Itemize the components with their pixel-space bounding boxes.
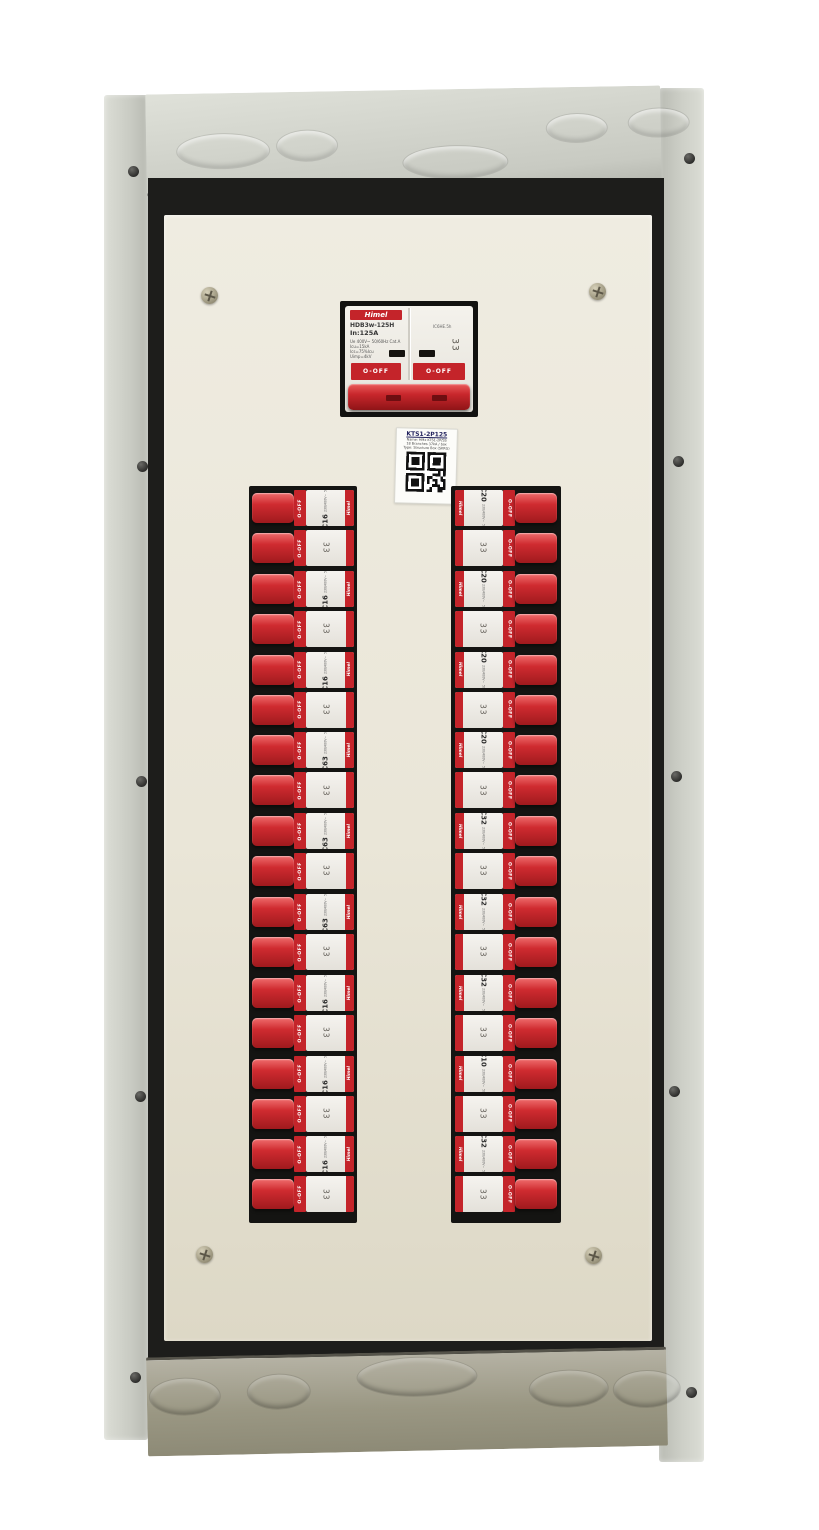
breaker-toggle[interactable] (252, 1099, 294, 1129)
breaker-pole-plain: O-OFF 33 (455, 934, 557, 970)
breaker-label: HDB3wN C16 230/400V~ 50/60Hz 6000 (306, 571, 345, 607)
off-band: O-OFF (503, 1056, 515, 1092)
branch-breaker: O-OFF HDB3wN C32 230/400V~ 50/60Hz 6000 … (455, 975, 557, 1052)
breaker-body: 33 (306, 692, 354, 728)
off-band: O-OFF (294, 571, 306, 607)
himel-logo: Himel (345, 732, 354, 768)
cert-mark: 33 (479, 865, 488, 877)
off-band: O-OFF (294, 934, 306, 970)
breaker-voltage: 230/400V~ (482, 988, 486, 1006)
breaker-toggle[interactable] (252, 614, 294, 644)
breaker-voltage: 230/400V~ (482, 1150, 486, 1168)
breaker-frequency: 50/60Hz (324, 732, 328, 734)
cert-mark: 33 (322, 785, 331, 797)
off-band: O-OFF (294, 1015, 306, 1051)
breaker-toggle[interactable] (252, 1059, 294, 1089)
himel-logo: Himel (455, 652, 464, 688)
off-band: O-OFF (413, 363, 465, 380)
off-band: O-OFF (294, 1096, 306, 1132)
off-band: O-OFF (351, 363, 401, 380)
breaker-voltage: 230/400V~ (482, 584, 486, 602)
flange-screw (128, 166, 139, 177)
breaker-pole-plain: O-OFF 33 (252, 1096, 354, 1132)
breaker-frequency: 50/60Hz (324, 571, 328, 573)
breaker-toggle[interactable] (515, 1059, 557, 1089)
branch-breaker: O-OFF HDB3wN C20 230/400V~ 50/60Hz 6000 … (455, 732, 557, 809)
breaker-pole-plain: O-OFF 33 (252, 772, 354, 808)
breaker-rating: C63 (322, 757, 330, 769)
breaker-pole-plain: O-OFF 33 (252, 853, 354, 889)
knockout-oval (148, 1377, 221, 1416)
breaker-label: HDB3wN C16 230/400V~ 50/60Hz 6000 (306, 652, 345, 688)
breaker-label: HDB3wN C20 230/400V~ 50/60Hz 6000 (464, 652, 503, 688)
breaker-pole-labeled: O-OFF HDB3wN C63 230/400V~ 50/60Hz 6000 … (252, 732, 354, 768)
branch-breaker: O-OFF HDB3wN C16 230/400V~ 50/60Hz 6000 … (252, 652, 354, 729)
cert-mark: 33 (479, 785, 488, 797)
breaker-pole-labeled: O-OFF HDB3wN C20 230/400V~ 50/60Hz 6000 … (455, 732, 557, 768)
breaker-pole-labeled: O-OFF HDB3wN C32 230/400V~ 50/60Hz 6000 … (455, 1136, 557, 1172)
off-band: O-OFF (503, 1176, 515, 1212)
breaker-rating: C16 (322, 514, 330, 526)
flange-screw (684, 153, 695, 164)
breaker-pole-labeled: O-OFF HDB3wN C16 230/400V~ 50/60Hz 6000 … (252, 490, 354, 526)
main-breaker-rating: In:125A (350, 329, 378, 337)
breaker-toggle[interactable] (252, 897, 294, 927)
breaker-toggle[interactable] (252, 1018, 294, 1048)
flange-screw (130, 1372, 141, 1383)
cert-mark: 33 (479, 623, 488, 635)
breaker-rating: C63 (322, 838, 330, 850)
knockout-oval (356, 1356, 478, 1399)
breaker-body: 33 (455, 1015, 503, 1051)
breaker-pole-plain: O-OFF 33 (252, 692, 354, 728)
breaker-toggle[interactable] (515, 655, 557, 685)
breaker-pole-labeled: O-OFF HDB3wN C16 230/400V~ 50/60Hz 6000 … (252, 1056, 354, 1092)
cert-mark: 33 (322, 1189, 331, 1201)
breaker-label: HDB3wN C10 230/400V~ 50/60Hz 6000 (464, 1056, 503, 1092)
red-stripe (346, 1096, 354, 1132)
breaker-body: 33 (455, 530, 503, 566)
breaker-frequency: 50/60Hz (482, 928, 486, 930)
breaker-body: HDB3wN C63 230/400V~ 50/60Hz 6000 Himel (306, 894, 354, 930)
off-band: O-OFF (294, 1056, 306, 1092)
branch-breaker: O-OFF HDB3wN C10 230/400V~ 50/60Hz 6000 … (455, 1056, 557, 1133)
breaker-rating: C16 (322, 999, 330, 1011)
panel-photo: Himel HDB3w-125H In:125A IC6HE.5h Ue 400… (0, 0, 819, 1530)
breaker-frequency: 50/60Hz (324, 975, 328, 977)
knockout-oval (546, 112, 609, 143)
door-screw (196, 1246, 213, 1263)
breaker-toggle[interactable] (515, 978, 557, 1008)
breaker-voltage: 230/400V~ (324, 979, 328, 997)
breaker-rating: C10 (480, 1056, 488, 1068)
breaker-rating: C20 (480, 571, 488, 583)
flange-screw (136, 776, 147, 787)
flange-screw (671, 771, 682, 782)
breaker-frequency: 50/60Hz (482, 1170, 486, 1172)
branch-breaker: O-OFF HDB3wN C20 230/400V~ 50/60Hz 6000 … (455, 652, 557, 729)
breaker-toggle[interactable] (252, 816, 294, 846)
off-band: O-OFF (294, 853, 306, 889)
breaker-rating: C20 (480, 732, 488, 744)
flange-screw (137, 461, 148, 472)
door-screw (201, 287, 218, 304)
breaker-voltage: 230/400V~ (482, 665, 486, 683)
breaker-rating: C32 (480, 975, 488, 987)
red-stripe (455, 611, 463, 647)
breaker-toggle[interactable] (515, 695, 557, 725)
qr-code (405, 451, 446, 492)
red-stripe (455, 1176, 463, 1212)
himel-logo: Himel (455, 975, 464, 1011)
knockout-oval (276, 129, 339, 162)
breaker-body: HDB3wN C16 230/400V~ 50/60Hz 6000 Himel (306, 1136, 354, 1172)
off-band: O-OFF (503, 1136, 515, 1172)
breaker-toggle[interactable] (252, 493, 294, 523)
breaker-frequency: 50/60Hz (324, 490, 328, 492)
handle-slot (432, 395, 447, 401)
breaker-voltage: 230/400V~ (482, 827, 486, 845)
breaker-body: 33 (455, 853, 503, 889)
breaker-body: 33 (306, 611, 354, 647)
breaker-pole-labeled: O-OFF HDB3wN C16 230/400V~ 50/60Hz 6000 … (252, 975, 354, 1011)
breaker-body: 33 (306, 1015, 354, 1051)
breaker-frequency: 50/60Hz (482, 524, 486, 526)
breaker-pole-labeled: O-OFF HDB3wN C20 230/400V~ 50/60Hz 6000 … (455, 490, 557, 526)
breaker-rating: C20 (480, 652, 488, 664)
cert-mark: 33 (450, 338, 460, 351)
breaker-voltage: 230/400V~ (324, 656, 328, 674)
red-stripe (455, 692, 463, 728)
breaker-voltage: 230/400V~ (482, 746, 486, 764)
red-stripe (455, 1015, 463, 1051)
breaker-body: HDB3wN C32 230/400V~ 50/60Hz 6000 Himel (455, 813, 503, 849)
breaker-body: HDB3wN C32 230/400V~ 50/60Hz 6000 Himel (455, 1136, 503, 1172)
off-band: O-OFF (503, 530, 515, 566)
breaker-toggle[interactable] (515, 493, 557, 523)
cert-mark: 33 (322, 865, 331, 877)
breaker-pole-labeled: O-OFF HDB3wN C32 230/400V~ 50/60Hz 6000 … (455, 975, 557, 1011)
breaker-label: HDB3wN C32 230/400V~ 50/60Hz 6000 (464, 1136, 503, 1172)
knockout-oval (402, 144, 509, 180)
breaker-frequency: 50/60Hz (482, 605, 486, 607)
cert-mark: 33 (479, 704, 488, 716)
breaker-label: HDB3wN C32 230/400V~ 50/60Hz 6000 (464, 894, 503, 930)
breaker-toggle[interactable] (515, 897, 557, 927)
off-band: O-OFF (294, 652, 306, 688)
breaker-body: HDB3wN C16 230/400V~ 50/60Hz 6000 Himel (306, 975, 354, 1011)
off-band: O-OFF (503, 1096, 515, 1132)
red-stripe (346, 853, 354, 889)
breaker-body: 33 (455, 1096, 503, 1132)
breaker-body: 33 (455, 1176, 503, 1212)
himel-logo: Himel (345, 1056, 354, 1092)
enclosure-rail-bottom (146, 1347, 668, 1457)
off-band: O-OFF (503, 611, 515, 647)
breaker-body: HDB3wN C20 230/400V~ 50/60Hz 6000 Himel (455, 652, 503, 688)
breaker-rating: C16 (322, 676, 330, 688)
cert-mark: 33 (479, 1027, 488, 1039)
breaker-pole-labeled: O-OFF HDB3wN C20 230/400V~ 50/60Hz 6000 … (455, 652, 557, 688)
breaker-voltage: 230/400V~ (324, 1141, 328, 1159)
himel-logo: Himel (455, 813, 464, 849)
branch-breaker: O-OFF HDB3wN C63 230/400V~ 50/60Hz 6000 … (252, 894, 354, 971)
breaker-body: HDB3wN C20 230/400V~ 50/60Hz 6000 Himel (455, 490, 503, 526)
breaker-toggle[interactable] (515, 1099, 557, 1129)
breaker-frequency: 50/60Hz (324, 1136, 328, 1138)
off-band: O-OFF (503, 813, 515, 849)
breaker-label: HDB3wN C20 230/400V~ 50/60Hz 6000 (464, 490, 503, 526)
breaker-label: HDB3wN C16 230/400V~ 50/60Hz 6000 (306, 1056, 345, 1092)
breaker-frequency: 50/60Hz (482, 685, 486, 687)
off-band: O-OFF (294, 732, 306, 768)
off-band: O-OFF (294, 611, 306, 647)
breaker-pole-plain: O-OFF 33 (455, 1176, 557, 1212)
breaker-label: HDB3wN C16 230/400V~ 50/60Hz 6000 (306, 975, 345, 1011)
himel-logo: Himel (350, 310, 402, 320)
red-stripe (346, 772, 354, 808)
breaker-pole-labeled: O-OFF HDB3wN C32 230/400V~ 50/60Hz 6000 … (455, 894, 557, 930)
breaker-label: HDB3wN C32 230/400V~ 50/60Hz 6000 (464, 813, 503, 849)
off-band: O-OFF (294, 975, 306, 1011)
breaker-toggle[interactable] (252, 775, 294, 805)
breaker-toggle[interactable] (515, 614, 557, 644)
breaker-frequency: 50/60Hz (482, 1009, 486, 1011)
breaker-pole-labeled: O-OFF HDB3wN C16 230/400V~ 50/60Hz 6000 … (252, 652, 354, 688)
breaker-pole-labeled: O-OFF HDB3wN C63 230/400V~ 50/60Hz 6000 … (252, 813, 354, 849)
breaker-toggle[interactable] (252, 533, 294, 563)
breaker-pole-plain: O-OFF 33 (252, 611, 354, 647)
breaker-body: 33 (455, 692, 503, 728)
breaker-rating: C63 (322, 918, 330, 930)
breaker-label: HDB3wN C16 230/400V~ 50/60Hz 6000 (306, 1136, 345, 1172)
breaker-body: HDB3wN C32 230/400V~ 50/60Hz 6000 Himel (455, 894, 503, 930)
breaker-frequency: 50/60Hz (482, 766, 486, 768)
breaker-rating: C32 (480, 813, 488, 825)
off-band: O-OFF (294, 894, 306, 930)
himel-logo: Himel (455, 732, 464, 768)
off-band: O-OFF (503, 894, 515, 930)
breaker-toggle[interactable] (252, 1179, 294, 1209)
breaker-pole-plain: O-OFF 33 (252, 1176, 354, 1212)
breaker-body: 33 (306, 1096, 354, 1132)
enclosure-flange-left (104, 95, 148, 1440)
himel-logo: Himel (345, 571, 354, 607)
breaker-toggle[interactable] (515, 1179, 557, 1209)
breaker-toggle[interactable] (515, 856, 557, 886)
breaker-toggle[interactable] (252, 574, 294, 604)
off-band: O-OFF (503, 772, 515, 808)
breaker-rating: C32 (480, 1136, 488, 1148)
breaker-body: HDB3wN C10 230/400V~ 50/60Hz 6000 Himel (455, 1056, 503, 1092)
breaker-body: HDB3wN C16 230/400V~ 50/60Hz 6000 Himel (306, 1056, 354, 1092)
red-stripe (346, 1015, 354, 1051)
breaker-toggle[interactable] (252, 695, 294, 725)
off-band: O-OFF (503, 732, 515, 768)
branch-breaker: O-OFF HDB3wN C16 230/400V~ 50/60Hz 6000 … (252, 975, 354, 1052)
off-band: O-OFF (294, 490, 306, 526)
breaker-toggle[interactable] (252, 856, 294, 886)
breaker-voltage: 230/400V~ (482, 504, 486, 522)
breaker-pole-plain: O-OFF 33 (252, 934, 354, 970)
cert-mark: 33 (479, 946, 488, 958)
breaker-frequency: 50/60Hz (324, 652, 328, 654)
off-band: O-OFF (294, 813, 306, 849)
breaker-rating: C32 (480, 894, 488, 906)
off-band: O-OFF (294, 530, 306, 566)
breaker-body: HDB3wN C20 230/400V~ 50/60Hz 6000 Himel (455, 571, 503, 607)
branch-breaker: O-OFF HDB3wN C32 230/400V~ 50/60Hz 6000 … (455, 813, 557, 890)
branch-breaker: O-OFF HDB3wN C63 230/400V~ 50/60Hz 6000 … (252, 732, 354, 809)
breaker-voltage: 230/400V~ (324, 1060, 328, 1078)
breaker-pole-labeled: O-OFF HDB3wN C20 230/400V~ 50/60Hz 6000 … (455, 571, 557, 607)
himel-logo: Himel (455, 490, 464, 526)
himel-logo: Himel (345, 894, 354, 930)
main-breaker: Himel HDB3w-125H In:125A IC6HE.5h Ue 400… (345, 306, 473, 412)
breaker-pole-labeled: O-OFF HDB3wN C32 230/400V~ 50/60Hz 6000 … (455, 813, 557, 849)
breaker-body: 33 (455, 934, 503, 970)
cert-mark: 33 (322, 946, 331, 958)
breaker-toggle[interactable] (515, 775, 557, 805)
himel-logo: Himel (455, 1056, 464, 1092)
breaker-voltage: 230/400V~ (482, 1069, 486, 1087)
breaker-toggle[interactable] (252, 978, 294, 1008)
breaker-pole-labeled: O-OFF HDB3wN C16 230/400V~ 50/60Hz 6000 … (252, 1136, 354, 1172)
cert-mark: 33 (322, 623, 331, 635)
breaker-voltage: 230/400V~ (324, 575, 328, 593)
breaker-rating: C20 (480, 490, 488, 502)
breaker-rating: C16 (322, 595, 330, 607)
breaker-toggle[interactable] (515, 1139, 557, 1169)
breaker-body: 33 (306, 772, 354, 808)
breaker-frequency: 50/60Hz (324, 813, 328, 815)
off-band: O-OFF (503, 975, 515, 1011)
himel-logo: Himel (345, 490, 354, 526)
branch-breaker: O-OFF HDB3wN C16 230/400V~ 50/60Hz 6000 … (252, 490, 354, 567)
branch-breaker: O-OFF HDB3wN C16 230/400V~ 50/60Hz 6000 … (252, 571, 354, 648)
breaker-body: HDB3wN C32 230/400V~ 50/60Hz 6000 Himel (455, 975, 503, 1011)
breaker-toggle[interactable] (515, 574, 557, 604)
main-breaker-toggle[interactable] (348, 384, 470, 410)
breaker-toggle[interactable] (515, 816, 557, 846)
qr-label: KTS1-2P125 Name: HMx KTS1-2P/SS 18 Branc… (394, 427, 458, 505)
red-stripe (346, 692, 354, 728)
knockout-oval (176, 132, 271, 170)
branch-breaker: O-OFF HDB3wN C16 230/400V~ 50/60Hz 6000 … (252, 1136, 354, 1213)
breaker-pole-plain: O-OFF 33 (455, 1015, 557, 1051)
main-breaker-cert: IC6HE.5h (433, 324, 451, 329)
breaker-body: HDB3wN C16 230/400V~ 50/60Hz 6000 Himel (306, 490, 354, 526)
breaker-toggle[interactable] (515, 1018, 557, 1048)
off-band: O-OFF (503, 652, 515, 688)
off-band: O-OFF (294, 692, 306, 728)
breaker-voltage: 230/400V~ (324, 817, 328, 835)
branch-breaker: O-OFF HDB3wN C16 230/400V~ 50/60Hz 6000 … (252, 1056, 354, 1133)
breaker-body: 33 (306, 853, 354, 889)
breaker-pole-plain: O-OFF 33 (455, 772, 557, 808)
branch-breaker: O-OFF HDB3wN C20 230/400V~ 50/60Hz 6000 … (455, 571, 557, 648)
breaker-toggle[interactable] (252, 937, 294, 967)
red-stripe (455, 1096, 463, 1132)
off-band: O-OFF (503, 1015, 515, 1051)
breaker-label: HDB3wN C63 230/400V~ 50/60Hz 6000 (306, 813, 345, 849)
breaker-pole-plain: O-OFF 33 (455, 611, 557, 647)
off-band: O-OFF (294, 1136, 306, 1172)
breaker-pole-labeled: O-OFF HDB3wN C10 230/400V~ 50/60Hz 6000 … (455, 1056, 557, 1092)
breaker-label: HDB3wN C63 230/400V~ 50/60Hz 6000 (306, 894, 345, 930)
breaker-pole-plain: O-OFF 33 (252, 530, 354, 566)
branch-breaker: O-OFF HDB3wN C20 230/400V~ 50/60Hz 6000 … (455, 490, 557, 567)
door-screw (589, 283, 606, 300)
door-screw (585, 1247, 602, 1264)
knockout-oval (528, 1369, 609, 1409)
breaker-toggle[interactable] (252, 735, 294, 765)
breaker-pole-labeled: O-OFF HDB3wN C63 230/400V~ 50/60Hz 6000 … (252, 894, 354, 930)
handle-slot (386, 395, 401, 401)
breaker-toggle[interactable] (515, 937, 557, 967)
breaker-frequency: 50/60Hz (324, 894, 328, 896)
off-band: O-OFF (503, 692, 515, 728)
himel-logo: Himel (345, 813, 354, 849)
breaker-body: HDB3wN C63 230/400V~ 50/60Hz 6000 Himel (306, 732, 354, 768)
breaker-toggle[interactable] (252, 655, 294, 685)
off-band: O-OFF (294, 772, 306, 808)
himel-logo: Himel (455, 1136, 464, 1172)
breaker-body: HDB3wN C16 230/400V~ 50/60Hz 6000 Himel (306, 571, 354, 607)
breaker-pole-labeled: O-OFF HDB3wN C16 230/400V~ 50/60Hz 6000 … (252, 571, 354, 607)
breaker-label: HDB3wN C32 230/400V~ 50/60Hz 6000 (464, 975, 503, 1011)
breaker-body: 33 (455, 772, 503, 808)
cert-mark: 33 (322, 1027, 331, 1039)
knockout-oval (246, 1373, 311, 1410)
breaker-rating: C16 (322, 1161, 330, 1173)
breaker-body: 33 (306, 934, 354, 970)
himel-logo: Himel (345, 975, 354, 1011)
status-window (389, 350, 405, 357)
red-stripe (346, 1176, 354, 1212)
breaker-voltage: 230/400V~ (324, 898, 328, 916)
main-breaker-model: HDB3w-125H (350, 322, 394, 329)
breaker-body: 33 (306, 530, 354, 566)
breaker-label: HDB3wN C20 230/400V~ 50/60Hz 6000 (464, 571, 503, 607)
breaker-pole-plain: O-OFF 33 (455, 853, 557, 889)
breaker-toggle[interactable] (515, 735, 557, 765)
red-stripe (346, 611, 354, 647)
cert-mark: 33 (322, 704, 331, 716)
branch-breaker: O-OFF HDB3wN C32 230/400V~ 50/60Hz 6000 … (455, 1136, 557, 1213)
breaker-toggle[interactable] (515, 533, 557, 563)
branch-breaker: O-OFF HDB3wN C32 230/400V~ 50/60Hz 6000 … (455, 894, 557, 971)
off-band: O-OFF (294, 1176, 306, 1212)
red-stripe (455, 530, 463, 566)
cert-mark: 33 (479, 542, 488, 554)
red-stripe (346, 934, 354, 970)
breaker-toggle[interactable] (252, 1139, 294, 1169)
breaker-body: HDB3wN C16 230/400V~ 50/60Hz 6000 Himel (306, 652, 354, 688)
status-window (419, 350, 435, 357)
breaker-frequency: 50/60Hz (324, 1056, 328, 1058)
cert-mark: 33 (479, 1108, 488, 1120)
breaker-voltage: 230/400V~ (324, 737, 328, 755)
red-stripe (455, 853, 463, 889)
cert-mark: 33 (322, 1108, 331, 1120)
breaker-pole-plain: O-OFF 33 (455, 1096, 557, 1132)
breaker-body: 33 (455, 611, 503, 647)
himel-logo: Himel (455, 894, 464, 930)
breaker-voltage: 230/400V~ (324, 494, 328, 512)
breaker-label: HDB3wN C63 230/400V~ 50/60Hz 6000 (306, 732, 345, 768)
breaker-pole-plain: O-OFF 33 (455, 692, 557, 728)
